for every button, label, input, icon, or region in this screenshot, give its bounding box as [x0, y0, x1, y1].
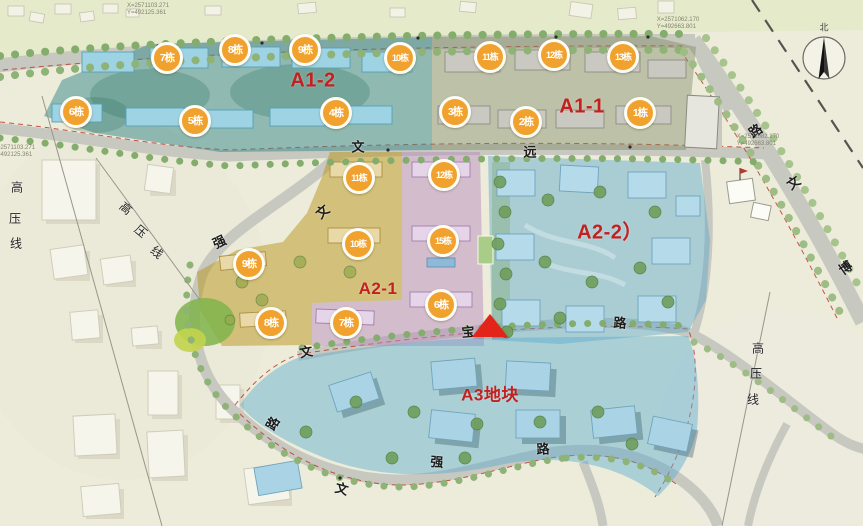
location-marker-icon	[472, 314, 508, 337]
compass-north-label: 北	[819, 21, 828, 34]
site-plan-map: A1-2A1-1A2-1A2-2）A3地块 7栋8栋9栋10栋6栋5栋4栋11栋…	[0, 0, 863, 526]
compass-icon	[803, 37, 845, 79]
map-base-layers	[0, 0, 863, 526]
